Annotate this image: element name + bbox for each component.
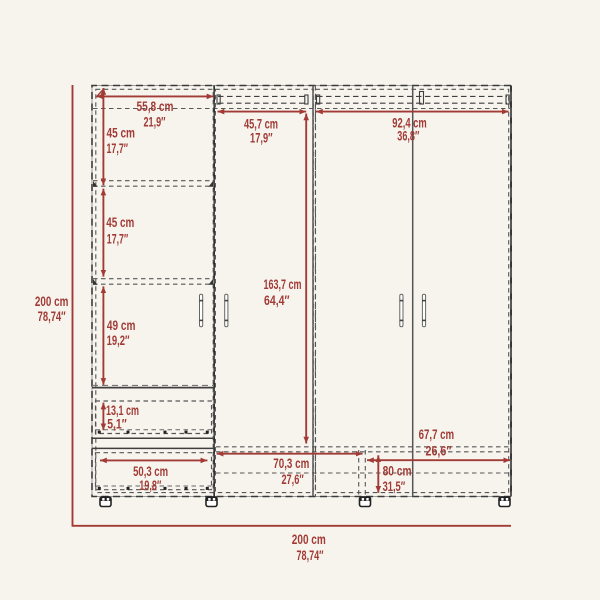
- svg-text:17,9″: 17,9″: [250, 129, 273, 145]
- svg-text:19,8″: 19,8″: [139, 477, 161, 493]
- svg-text:78,74″: 78,74″: [297, 547, 324, 563]
- svg-text:163,7 cm: 163,7 cm: [264, 276, 302, 292]
- svg-text:49 cm: 49 cm: [107, 317, 135, 333]
- svg-text:78,74″: 78,74″: [38, 308, 66, 324]
- svg-text:67,7 cm: 67,7 cm: [419, 426, 455, 442]
- svg-text:17,7″: 17,7″: [107, 230, 129, 246]
- svg-text:70,3 cm: 70,3 cm: [273, 455, 309, 471]
- svg-text:31,5″: 31,5″: [383, 478, 406, 494]
- svg-text:200 cm: 200 cm: [35, 293, 69, 309]
- svg-text:36,8″: 36,8″: [397, 127, 419, 143]
- svg-text:5,1″: 5,1″: [107, 416, 127, 432]
- svg-text:64,4″: 64,4″: [264, 292, 290, 308]
- svg-text:27,6″: 27,6″: [281, 471, 303, 487]
- svg-text:19,2″: 19,2″: [107, 332, 130, 348]
- svg-text:45 cm: 45 cm: [107, 124, 136, 140]
- svg-text:200 cm: 200 cm: [292, 531, 326, 547]
- svg-text:26,6″: 26,6″: [426, 442, 452, 458]
- svg-text:21,9″: 21,9″: [144, 113, 166, 129]
- svg-text:55,8 cm: 55,8 cm: [137, 98, 174, 114]
- svg-text:45 cm: 45 cm: [106, 214, 134, 230]
- svg-text:80 cm: 80 cm: [383, 463, 412, 479]
- svg-text:17,7″: 17,7″: [107, 140, 129, 156]
